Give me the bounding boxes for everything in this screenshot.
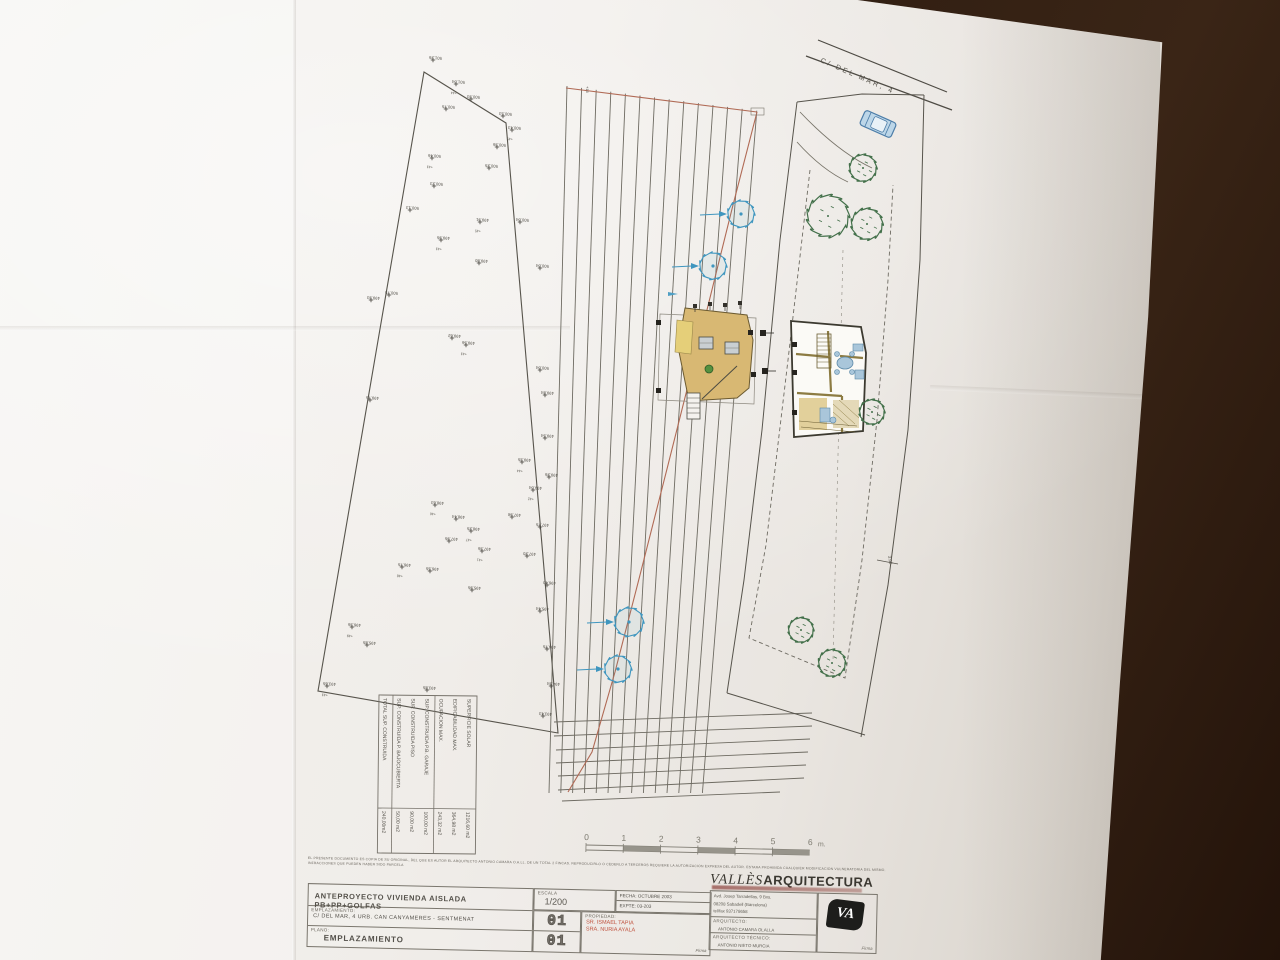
survey-point-elevation: 494.34 <box>546 681 560 687</box>
scale-bar-number: 3 <box>696 834 701 844</box>
house-floor-plan <box>791 321 866 437</box>
survey-point-elevation: 501.04 <box>451 79 465 85</box>
survey-point-elevation: 500.04 <box>535 365 549 371</box>
contour-line <box>667 105 713 793</box>
survey-point-number: +43 <box>322 693 328 697</box>
survey-point-elevation: 499.35 <box>517 457 531 463</box>
survey-point-elevation: 500.25 <box>484 163 498 169</box>
survey-point-elevation: 500.53 <box>498 111 512 117</box>
road-contour-line <box>558 765 806 776</box>
tree-foliage-dash <box>861 219 864 221</box>
tree-trunk <box>739 212 742 215</box>
survey-point-number: +43 <box>436 247 442 251</box>
site-plan-drawing: C/ DEL MAR, 4+163.00501.26501.04+44500.9… <box>0 0 1280 960</box>
survey-point-elevation: 493.65 <box>322 681 336 687</box>
survey-point-number: +46 <box>430 512 436 516</box>
areas-table-row-value: 1216,60 m2 <box>464 812 470 839</box>
tree-center <box>827 215 829 217</box>
contour-line <box>679 107 728 793</box>
survey-point-elevation: 498.44 <box>451 514 465 520</box>
tree-foliage-dash <box>807 632 810 634</box>
survey-point-elevation: 497.20 <box>522 551 536 557</box>
scale-bar-number: 1 <box>621 833 626 843</box>
tree-foliage-dash <box>857 171 860 173</box>
tree-center <box>866 223 868 225</box>
scale-bar: 0123456m. <box>584 832 826 857</box>
survey-point-elevation: 500.13 <box>405 205 419 211</box>
road-contour-line <box>554 713 812 722</box>
tree-trunk <box>711 264 714 267</box>
survey-point-elevation: 499.62 <box>447 333 461 339</box>
survey-point-elevation: 493.43 <box>538 711 552 717</box>
tree-foliage-dash <box>872 418 875 420</box>
tree-arrow-head <box>719 211 727 217</box>
tree-foliage-dash <box>826 666 829 668</box>
survey-point-elevation: 500.36 <box>492 142 506 148</box>
areas-table-row-value: 90,00 m2 <box>408 811 414 832</box>
tree-arrow-line <box>700 214 720 215</box>
elevation-tick-label: +16 <box>585 86 590 94</box>
survey-point-number: +48 <box>397 574 403 578</box>
survey-point-elevation: 493.85 <box>422 685 436 691</box>
firma-label-2: Firma <box>862 946 873 951</box>
survey-point-elevation: 497.95 <box>444 536 458 542</box>
scale-bar-number: 6 <box>808 837 813 847</box>
survey-point-elevation: 500.43 <box>507 125 521 131</box>
survey-point-elevation: 499.84 <box>540 390 554 396</box>
tree-arrow-head <box>596 666 604 672</box>
tree-foliage-dash <box>834 657 837 659</box>
tree-foliage-dash <box>820 209 823 211</box>
tree-trunk <box>616 667 619 670</box>
survey-point-elevation: 501.26 <box>428 55 442 61</box>
arq-tecnico-name: ANTONIO NIETO MURCIA <box>710 941 816 951</box>
logo-cell: VA Firma <box>816 893 877 954</box>
survey-point-elevation: 500.04 <box>515 217 529 223</box>
areas-table-group-line <box>433 696 435 854</box>
survey-point-number: +45 <box>475 229 481 233</box>
tree-foliage-dash <box>874 227 877 229</box>
areas-table-row-label: SUP. CONSTRUIDA P. BAJOCUBIERTA <box>395 698 402 789</box>
tree-center <box>862 167 864 169</box>
scale-bar-unit: m. <box>818 841 826 848</box>
survey-point-number: +43 <box>427 165 433 169</box>
areas-table-row-value: 100,00 m2 <box>422 811 428 835</box>
survey-point-elevation: 499.75 <box>365 395 379 401</box>
survey-point-elevation: 500.23 <box>429 181 443 187</box>
survey-point-elevation: 497.98 <box>507 512 521 518</box>
tree-foliage-dash <box>867 231 870 233</box>
contour-line <box>584 92 610 793</box>
tree-foliage-dash <box>869 217 872 219</box>
survey-point-elevation: 495.95 <box>467 585 481 591</box>
title-block: ANTEPROYECTO VIVIENDA AISLADA PB+PP+GOLF… <box>304 879 881 960</box>
survey-point-elevation: 498.25 <box>466 526 480 532</box>
scale-bar-number: 4 <box>733 835 738 845</box>
survey-point-elevation: 500.75 <box>441 104 455 110</box>
scale-bar-segment <box>623 846 660 852</box>
survey-point-number: +43 <box>461 352 467 356</box>
survey-point-elevation: 496.75 <box>397 562 411 568</box>
survey-point-number: +49 <box>347 634 353 638</box>
tree-foliage-dash <box>803 624 806 626</box>
car-symbol <box>859 110 897 138</box>
dimension-label: 3.00 <box>887 555 894 565</box>
survey-point-elevation: 496.40 <box>542 580 556 586</box>
survey-point-elevation: 495.44 <box>535 606 549 612</box>
areas-table-row-value: 243,32 m2 <box>436 812 442 836</box>
survey-point-elevation: 499.95 <box>436 235 450 241</box>
survey-point-elevation: 496.36 <box>347 622 361 628</box>
tree-center <box>871 411 873 413</box>
tree-arrow-head <box>691 263 699 269</box>
va-logo: VA <box>826 898 865 931</box>
survey-point-number: +42 <box>528 497 534 501</box>
tree-foliage-dash <box>796 626 799 628</box>
scale-bar-number: 2 <box>659 834 664 844</box>
areas-table-row-label: SUPERFICIE SOLAR <box>465 699 472 748</box>
tree-arrow-head <box>606 619 614 625</box>
areas-table-row-value: 240,00m2 <box>380 811 386 834</box>
firma-label: Firma <box>695 948 706 953</box>
tree-foliage-dash <box>819 220 822 222</box>
survey-point-elevation: 499.54 <box>540 433 554 439</box>
scale-bar-segment <box>772 849 809 855</box>
tree-foliage-dash <box>858 164 861 166</box>
tree-trunk <box>627 620 630 623</box>
sheet-number-bottom: 01 <box>533 931 579 951</box>
tree-foliage-dash <box>831 206 834 208</box>
areas-table-column-line <box>378 808 476 809</box>
survey-point-elevation: 498.63 <box>430 500 444 506</box>
office-address-3: tel/fax 937178658 <box>710 906 816 916</box>
street-name-label: C/ DEL MAR, 4 <box>819 57 895 95</box>
scale-bar-number: 0 <box>584 832 589 842</box>
tree-foliage-dash <box>878 414 881 416</box>
tree-foliage-dash <box>860 227 863 229</box>
tree-foliage-dash <box>837 220 840 222</box>
areas-table-group-line <box>391 695 393 853</box>
houses-layer <box>656 292 866 437</box>
areas-table-row-label: SUP. CONSTRUIDA PISO <box>409 698 416 757</box>
areas-table: SUPERFICIE SOLAR1216,60 m2EDIFICABILIDAD… <box>377 695 477 854</box>
sheet-number-top: 01 <box>534 911 580 931</box>
title-block-main: ANTEPROYECTO VIVIENDA AISLADA PB+PP+GOLF… <box>306 883 533 952</box>
escala-value: 1/200 <box>534 896 614 908</box>
propiedad-cell: PROPIEDAD: SR. ISMAEL TAPIA SRA. NURIA A… <box>580 911 711 956</box>
tree-foliage-dash <box>838 666 841 668</box>
survey-point-elevation: 499.80 <box>474 258 488 264</box>
tree-foliage-dash <box>865 162 868 164</box>
survey-point-elevation: 499.93 <box>366 295 380 301</box>
areas-table-row-value: 364,98 m2 <box>450 812 456 836</box>
areas-table-row-label: OCUPACION MAX. <box>437 699 443 743</box>
parcel-axis-dashed <box>833 250 843 660</box>
survey-point-elevation: 500.93 <box>466 94 480 100</box>
tree-foliage-dash <box>828 226 831 228</box>
tree-foliage-dash <box>867 408 870 410</box>
survey-point-elevation: 499.26 <box>544 472 558 478</box>
contour-line <box>655 103 698 793</box>
tree-foliage-dash <box>827 659 830 661</box>
propiedad-name-2: SRA. NURIA AYALA <box>582 926 710 936</box>
red-boundary-top <box>566 88 757 112</box>
tree-foliage-dash <box>801 636 804 638</box>
contour-line <box>573 90 597 793</box>
road-contour-line <box>562 792 780 801</box>
sheet-number-cell: 01 01 <box>532 910 581 953</box>
right-parcel-top-boundary <box>797 94 924 102</box>
survey-point-elevation: 497.36 <box>477 546 491 552</box>
areas-table-row-label: EDIFICABILIDAD MAX. <box>451 699 458 752</box>
survey-parcel-boundary <box>318 72 558 733</box>
fecha-expte-cell: FECHA: OCTUBRE 2003 EXPTE: 03-203 <box>615 890 711 914</box>
photographed-site-plan: C/ DEL MAR, 4+163.00501.26501.04+44500.9… <box>0 0 1280 960</box>
tree-foliage-dash <box>832 669 835 671</box>
office-address-cell: Avd. Josep Tarradellas, 9 Bxs. 08208 Sab… <box>708 890 817 952</box>
tree-arrow-line <box>672 266 692 267</box>
areas-table-row-label: SUP. CONSTRUIDA P.B. GARAJE <box>423 698 430 776</box>
tree-center <box>800 629 802 631</box>
scale-bar-segment <box>698 848 735 854</box>
architect-block: VALLÈSARQUITECTURA Avd. Josep Tarradella… <box>708 872 880 960</box>
dimension-tick <box>877 560 898 564</box>
tree-foliage-dash <box>869 171 872 173</box>
tree-arrow-line <box>577 669 597 670</box>
survey-point-elevation: 496.55 <box>425 566 439 572</box>
survey-point-number: +45 <box>507 137 513 141</box>
survey-point-number: +44 <box>451 91 457 95</box>
scale-bar-number: 5 <box>771 836 776 846</box>
contour-line <box>608 96 640 794</box>
survey-point-elevation: 499.56 <box>461 340 475 346</box>
survey-point-elevation: 499.04 <box>528 485 542 491</box>
survey-point-elevation: 495.85 <box>362 640 376 646</box>
escala-cell: ESCALA 1/200 <box>533 888 615 912</box>
tree-foliage-dash <box>796 633 799 635</box>
survey-point-elevation: 500.46 <box>427 153 441 159</box>
areas-table-row-value: 50,00 m2 <box>394 811 400 832</box>
survey-point-elevation: 499.91 <box>475 217 489 223</box>
survey-point-elevation: 500.75 <box>384 290 398 296</box>
survey-point-number: +41 <box>477 558 483 562</box>
tree-arrow-line <box>587 622 607 623</box>
tree-center <box>831 662 833 664</box>
survey-point-elevation: 494.75 <box>542 644 556 650</box>
road-contour-line <box>558 778 804 790</box>
survey-point-number: +44 <box>517 469 523 473</box>
tree-foliage-dash <box>867 415 870 417</box>
survey-point-number: +47 <box>466 538 472 542</box>
paper-sheet: C/ DEL MAR, 4+163.00501.26501.04+44500.9… <box>0 0 1280 960</box>
tree-foliage-dash <box>874 406 877 408</box>
tree-foliage-dash <box>863 174 866 176</box>
survey-point-elevation: 497.75 <box>535 522 549 528</box>
areas-table-row-label: TOTAL SUP. CONSTRUIDA <box>381 698 388 761</box>
survey-point-elevation: 500.04 <box>535 263 549 269</box>
